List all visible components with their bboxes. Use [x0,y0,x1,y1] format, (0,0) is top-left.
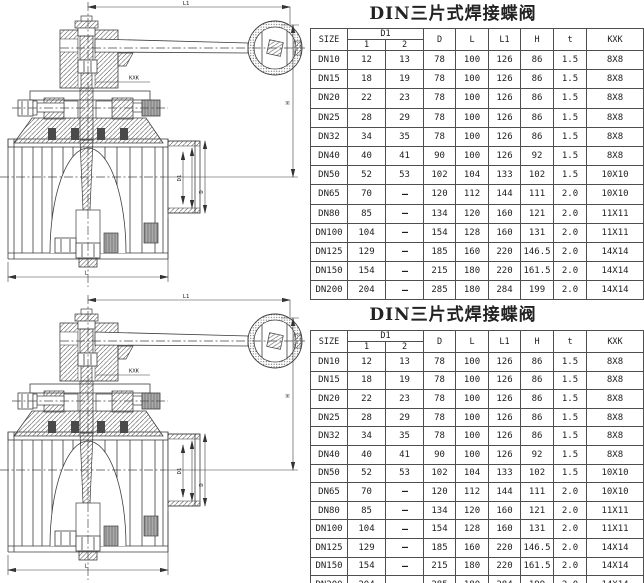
table-cell: — [386,538,424,557]
table-cell: 23 [386,390,424,409]
table-cell: 102 [424,464,456,483]
table-title-1: DIN三片式焊接蝶阀 [286,2,620,26]
column-header: L [456,29,489,51]
table-cell: 78 [424,70,456,89]
table-cell: 14X14 [587,538,644,557]
table-cell: 86 [521,127,554,146]
table-row: DN6570—1201121441112.010X10 [311,483,644,502]
table-row: DN125129—185160220146.52.014X14 [311,538,644,557]
table-cell: 53 [386,464,424,483]
table-cell: 12 [348,353,386,372]
table-cell: 120 [424,483,456,502]
table-row: DN20222378100126861.58X8 [311,89,644,108]
table-cell: 86 [521,408,554,427]
row-header-size: DN20 [311,89,348,108]
table-cell: 180 [456,262,489,281]
table-cell: 100 [456,408,489,427]
table-cell: 199 [521,576,554,583]
table-cell: 1.5 [554,427,587,446]
table-cell: 1.5 [554,89,587,108]
table-cell: 2.0 [554,538,587,557]
table-row: DN15181978100126861.58X8 [311,371,644,390]
table-cell: 78 [424,127,456,146]
row-header-size: DN10 [311,51,348,70]
table-cell: 120 [424,185,456,204]
row-header-size: DN100 [311,520,348,539]
table-row: DN10121378100126861.58X8 [311,353,644,372]
column-header: L1 [489,29,521,51]
table-cell: 70 [348,483,386,502]
drawing-section-2: L1 H D1 D L KXK [0,293,310,583]
table-cell: 100 [456,445,489,464]
dim-label-d: D [199,483,205,486]
table-cell: 126 [489,146,521,165]
table-cell: 204 [348,281,386,300]
spec-table-2: SIZED1DLL1HtKXK12DN10121378100126861.58X… [310,330,644,583]
table-cell: 100 [456,371,489,390]
table-cell: 19 [386,70,424,89]
table-row: DN100104—1541281601312.011X11 [311,520,644,539]
table-cell: — [386,223,424,242]
column-header: L [456,331,489,353]
table-cell: 126 [489,108,521,127]
table-cell: 126 [489,371,521,390]
table-cell: 144 [489,185,521,204]
table-cell: 86 [521,89,554,108]
table-cell: 86 [521,51,554,70]
table-cell: — [386,501,424,520]
table-header-row: SIZED1DLL1HtKXK [311,29,644,40]
row-header-size: DN65 [311,483,348,502]
table-cell: 126 [489,51,521,70]
column-header: H [521,29,554,51]
table-row: DN40404190100126921.58X8 [311,146,644,165]
table-cell: 160 [456,242,489,261]
table-row: DN32343578100126861.58X8 [311,427,644,446]
table-row: DN15181978100126861.58X8 [311,70,644,89]
table-cell: 1.5 [554,127,587,146]
table-cell: 126 [489,70,521,89]
table-cell: 285 [424,281,456,300]
table-row: DN40404190100126921.58X8 [311,445,644,464]
dim-label-h: H [286,101,292,104]
table-cell: 78 [424,353,456,372]
table-cell: 2.0 [554,501,587,520]
table-cell: — [386,281,424,300]
table-row: DN8085—1341201601212.011X11 [311,501,644,520]
handle-bar [95,332,248,346]
table-cell: — [386,185,424,204]
table-row: DN20222378100126861.58X8 [311,390,644,409]
table-title-2: DIN三片式焊接蝶阀 [286,303,620,327]
table-cell: 10X10 [587,483,644,502]
table-cell: 8X8 [587,146,644,165]
table-cell: 2.0 [554,281,587,300]
table-cell: 8X8 [587,89,644,108]
table-cell: 131 [521,520,554,539]
table-cell: 18 [348,371,386,390]
table-cell: 28 [348,108,386,127]
table-cell: 23 [386,89,424,108]
dim-label-d1: D1 [177,175,183,182]
table-cell: 29 [386,108,424,127]
table-row: DN150154—215180220161.52.014X14 [311,262,644,281]
table-cell: 161.5 [521,262,554,281]
table-cell: — [386,262,424,281]
row-header-size: DN20 [311,390,348,409]
table-cell: 8X8 [587,127,644,146]
table-cell: 40 [348,146,386,165]
table-cell: 2.0 [554,262,587,281]
row-header-size: DN40 [311,445,348,464]
column-header-d1: D1 [348,331,424,342]
column-header: L1 [489,331,521,353]
table-cell: 120 [456,204,489,223]
table-cell: 8X8 [587,427,644,446]
row-header-size: DN150 [311,557,348,576]
table-cell: 126 [489,353,521,372]
table-cell: 185 [424,242,456,261]
table-cell: 160 [489,501,521,520]
table-header-row: SIZED1DLL1HtKXK [311,331,644,342]
table-cell: 154 [424,520,456,539]
table-cell: 53 [386,166,424,185]
table-cell: 2.0 [554,520,587,539]
table-cell: 34 [348,427,386,446]
table-cell: 133 [489,166,521,185]
table-cell: 1.5 [554,445,587,464]
table-cell: 215 [424,557,456,576]
column-header-d1: D1 [348,29,424,40]
table-cell: 220 [489,242,521,261]
row-header-size: DN125 [311,538,348,557]
table-cell: 8X8 [587,390,644,409]
butterfly-valve-drawing: L1 H D1 D L KXK [0,293,310,583]
drawing-section-1: L1 H D1 D L KXK [0,0,310,290]
row-header-size: DN150 [311,262,348,281]
table-cell: 41 [386,146,424,165]
table-cell: 8X8 [587,51,644,70]
row-header-size: DN15 [311,371,348,390]
table-cell: 104 [456,166,489,185]
table-cell: 102 [424,166,456,185]
table-cell: 121 [521,501,554,520]
table-cell: 112 [456,483,489,502]
table-cell: 29 [386,408,424,427]
table-cell: 120 [456,501,489,520]
table-cell: 40 [348,445,386,464]
table-cell: 41 [386,445,424,464]
table-cell: 100 [456,127,489,146]
table-cell: 112 [456,185,489,204]
table-cell: 86 [521,390,554,409]
row-header-size: DN80 [311,501,348,520]
table-cell: 100 [456,427,489,446]
table-cell: 111 [521,185,554,204]
table-cell: 2.0 [554,557,587,576]
table-cell: 111 [521,483,554,502]
table-cell: 2.0 [554,483,587,502]
table-cell: 14X14 [587,281,644,300]
table-cell: 126 [489,408,521,427]
table-cell: 126 [489,427,521,446]
column-header-size: SIZE [311,29,348,51]
table-cell: 131 [521,223,554,242]
table-cell: 154 [424,223,456,242]
table-cell: 10X10 [587,185,644,204]
table-cell: — [386,576,424,583]
table-cell: 8X8 [587,353,644,372]
table-cell: 2.0 [554,204,587,223]
table-cell: 28 [348,408,386,427]
table-cell: 104 [348,223,386,242]
table-cell: 10X10 [587,166,644,185]
table-cell: 180 [456,557,489,576]
table-cell: — [386,557,424,576]
table-cell: 19 [386,371,424,390]
table-cell: 11X11 [587,223,644,242]
table-cell: 8X8 [587,371,644,390]
table-cell: 126 [489,390,521,409]
table-cell: 35 [386,427,424,446]
table-row: DN200204—2851802841992.014X14 [311,576,644,583]
table-cell: 22 [348,89,386,108]
table-row: DN25282978100126861.58X8 [311,408,644,427]
table-cell: 1.5 [554,166,587,185]
column-header: t [554,331,587,353]
table-cell: 160 [489,204,521,223]
dim-label-l1: L1 [183,294,190,300]
row-header-size: DN15 [311,70,348,89]
column-header: t [554,29,587,51]
table-cell: 160 [489,223,521,242]
table-cell: 100 [456,70,489,89]
table-cell: 78 [424,371,456,390]
table-cell: 78 [424,408,456,427]
table-cell: — [386,242,424,261]
table-row: DN25282978100126861.58X8 [311,108,644,127]
table-cell: 100 [456,146,489,165]
table-cell: 90 [424,445,456,464]
row-header-size: DN50 [311,166,348,185]
table-cell: 215 [424,262,456,281]
table-cell: 35 [386,127,424,146]
table-cell: 134 [424,204,456,223]
table-cell: 128 [456,520,489,539]
table-cell: 1.5 [554,70,587,89]
table-cell: 78 [424,108,456,127]
table-cell: 52 [348,464,386,483]
table-row: DN150154—215180220161.52.014X14 [311,557,644,576]
row-header-size: DN40 [311,146,348,165]
table-cell: 85 [348,501,386,520]
table-cell: 13 [386,353,424,372]
table-row: DN5052531021041331021.510X10 [311,464,644,483]
table-cell: 86 [521,371,554,390]
table-cell: 2.0 [554,242,587,261]
table-cell: 90 [424,146,456,165]
table-cell: 100 [456,353,489,372]
table-cell: 14X14 [587,242,644,261]
table-cell: 161.5 [521,557,554,576]
table-cell: 129 [348,538,386,557]
table-cell: 86 [521,427,554,446]
table-cell: 102 [521,464,554,483]
table-cell: 1.5 [554,408,587,427]
table-cell: 284 [489,576,521,583]
column-subheader: 1 [348,342,386,353]
column-header: KXK [587,29,644,51]
table-cell: 14X14 [587,557,644,576]
column-subheader: 2 [386,342,424,353]
table-cell: 146.5 [521,242,554,261]
table-row: DN8085—1341201601212.011X11 [311,204,644,223]
table-cell: 52 [348,166,386,185]
table-cell: 1.5 [554,51,587,70]
table-cell: 134 [424,501,456,520]
column-header: D [424,29,456,51]
row-header-size: DN125 [311,242,348,261]
row-header-size: DN32 [311,427,348,446]
table-cell: 126 [489,445,521,464]
table-cell: 146.5 [521,538,554,557]
table-cell: 1.5 [554,390,587,409]
table-cell: 92 [521,146,554,165]
table-cell: 126 [489,127,521,146]
dim-label-h: H [286,394,292,397]
table-row: DN6570—1201121441112.010X10 [311,185,644,204]
table-cell: 86 [521,353,554,372]
table-cell: 285 [424,576,456,583]
table-cell: 14X14 [587,262,644,281]
table-cell: 85 [348,204,386,223]
table-cell: 8X8 [587,70,644,89]
table-cell: 100 [456,51,489,70]
table-cell: 92 [521,445,554,464]
table-cell: 154 [348,557,386,576]
table-cell: 128 [456,223,489,242]
table-cell: 1.5 [554,108,587,127]
table-cell: 22 [348,390,386,409]
row-header-size: DN200 [311,281,348,300]
table-cell: 11X11 [587,520,644,539]
column-subheader: 1 [348,40,386,51]
table-cell: — [386,204,424,223]
column-subheader: 2 [386,40,424,51]
table-cell: 133 [489,464,521,483]
table-cell: 1.5 [554,464,587,483]
table-cell: 11X11 [587,501,644,520]
table-cell: 204 [348,576,386,583]
table-cell: 220 [489,262,521,281]
table-cell: 220 [489,538,521,557]
table-cell: 8X8 [587,408,644,427]
table-cell: 2.0 [554,223,587,242]
table-cell: 78 [424,390,456,409]
table-cell: 13 [386,51,424,70]
column-header: H [521,331,554,353]
table-row: DN100104—1541281601312.011X11 [311,223,644,242]
table-cell: 86 [521,108,554,127]
table-cell: 129 [348,242,386,261]
dim-label-l1: L1 [183,1,190,7]
table-cell: 2.0 [554,185,587,204]
table-cell: 34 [348,127,386,146]
table-cell: 284 [489,281,521,300]
dim-label-kxk: KXK [129,76,140,82]
table-cell: 1.5 [554,371,587,390]
row-header-size: DN32 [311,127,348,146]
dim-label-d: D [199,190,205,193]
table-cell: 78 [424,51,456,70]
table-cell: 160 [456,538,489,557]
table-row: DN125129—185160220146.52.014X14 [311,242,644,261]
spec-table-1: SIZED1DLL1HtKXK12DN10121378100126861.58X… [310,28,644,300]
table-cell: 70 [348,185,386,204]
table-cell: 104 [456,464,489,483]
table-row: DN5052531021041331021.510X10 [311,166,644,185]
handle-bar [95,39,248,53]
table-cell: 180 [456,576,489,583]
table-cell: 160 [489,520,521,539]
table-cell: 185 [424,538,456,557]
table-cell: 14X14 [587,576,644,583]
table-cell: 126 [489,89,521,108]
table-cell: 100 [456,89,489,108]
table-cell: 10X10 [587,464,644,483]
table-cell: 18 [348,70,386,89]
table-cell: 180 [456,281,489,300]
table-cell: 86 [521,70,554,89]
column-header: KXK [587,331,644,353]
table-cell: 1.5 [554,353,587,372]
row-header-size: DN65 [311,185,348,204]
table-cell: 199 [521,281,554,300]
row-header-size: DN25 [311,108,348,127]
row-header-size: DN25 [311,408,348,427]
table-row: DN10121378100126861.58X8 [311,51,644,70]
table-cell: 78 [424,89,456,108]
table-cell: 220 [489,557,521,576]
row-header-size: DN50 [311,464,348,483]
table-cell: 104 [348,520,386,539]
row-header-size: DN100 [311,223,348,242]
table-cell: 8X8 [587,108,644,127]
table-cell: 2.0 [554,576,587,583]
table-cell: 100 [456,108,489,127]
dim-label-d1: D1 [177,468,183,475]
table-cell: 12 [348,51,386,70]
table-cell: 102 [521,166,554,185]
table-cell: — [386,520,424,539]
table-cell: — [386,483,424,502]
table-cell: 1.5 [554,146,587,165]
row-header-size: DN10 [311,353,348,372]
table-cell: 154 [348,262,386,281]
table-cell: 144 [489,483,521,502]
column-header: D [424,331,456,353]
table-cell: 11X11 [587,204,644,223]
butterfly-valve-drawing: L1 H D1 D L KXK [0,0,310,290]
table-cell: 121 [521,204,554,223]
table-row: DN200204—2851802841992.014X14 [311,281,644,300]
column-header-size: SIZE [311,331,348,353]
table-cell: 8X8 [587,445,644,464]
table-cell: 78 [424,427,456,446]
valve-spec-sheet: L1 H D1 D L KXK [0,0,644,583]
row-header-size: DN200 [311,576,348,583]
table-row: DN32343578100126861.58X8 [311,127,644,146]
